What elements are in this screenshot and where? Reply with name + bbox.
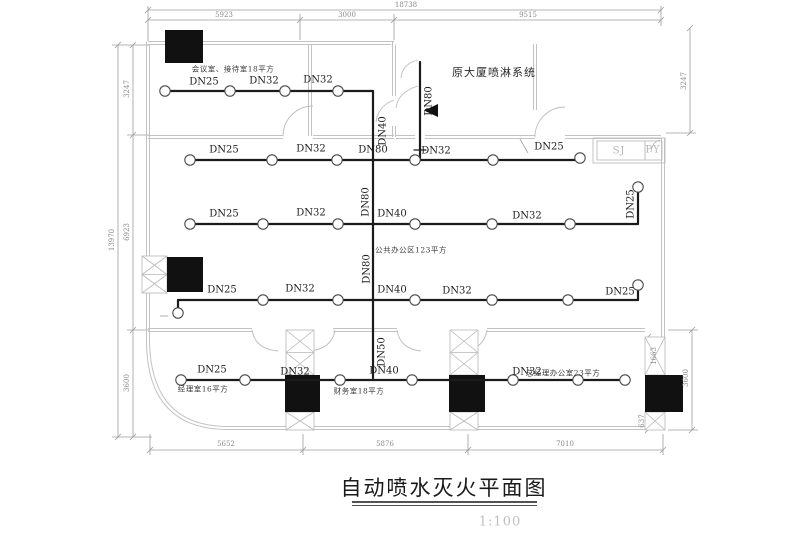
sprinkler-icon [575, 153, 585, 163]
pipe-label-dn25: DN25 [207, 285, 237, 296]
sprinkler-icon [225, 86, 235, 96]
sprinkler-icon [563, 295, 573, 305]
sprinkler-icon [332, 155, 342, 165]
pipe-label-dn25-vertical: DN25 [626, 189, 637, 219]
pipe-label-dn32: DN32 [296, 208, 326, 219]
room-label-open-office: 公共办公区123平方 [375, 245, 447, 256]
dim-top-total: 18738 [395, 1, 417, 9]
sprinkler-icon [407, 375, 417, 385]
shaft-hatches [142, 256, 665, 430]
pipe-label-dn32: DN32 [296, 144, 326, 155]
riser-label-dn80-supply: DN80 [424, 86, 435, 116]
sprinkler-icon [333, 219, 343, 229]
shaft-label-sj: SJ [613, 146, 626, 157]
sprinkler-icon [240, 375, 250, 385]
sprinkler-icon [487, 295, 497, 305]
dim-bottom-2: 5876 [376, 440, 394, 448]
sprinkler-icon [280, 86, 290, 96]
pipe-label-dn25: DN25 [534, 142, 564, 153]
dim-bottom-1: 5652 [217, 440, 235, 448]
pipe-label-dn32: DN32 [249, 76, 279, 87]
pipe-label-dn25: DN25 [189, 77, 219, 88]
pipe-label-dn40: DN40 [369, 366, 399, 377]
sprinkler-icon [185, 155, 195, 165]
sprinkler-heads [160, 86, 643, 385]
sprinkler-icon [335, 375, 345, 385]
column [167, 257, 203, 292]
pipe-label-dn25: DN25 [209, 209, 239, 220]
riser-label-dn40: DN40 [378, 116, 389, 146]
door-arc-right [535, 107, 565, 137]
room-label-meeting: 会议室、接待室18平方 [192, 64, 275, 75]
sprinkler-icon [173, 308, 183, 318]
sprinkler-icon [410, 219, 420, 229]
dim-bottom-3: 7010 [556, 440, 574, 448]
sprinkler-icon [410, 295, 420, 305]
title-underline [352, 502, 537, 506]
room-label-gm: 总经理办公室23平方 [526, 368, 601, 379]
pipe-label-dn25: DN25 [197, 365, 227, 376]
note-supply-system: 原大厦喷淋系统 [452, 64, 536, 80]
sprinkler-icon [620, 375, 630, 385]
sprinkler-icon [160, 86, 170, 96]
dim-right-inner-2: 637 [638, 414, 646, 427]
room-label-manager: 经理室16平方 [178, 384, 229, 395]
pipe-label-dn32: DN32 [442, 286, 472, 297]
drawing-title: 自动喷水灭火平面图 [341, 472, 548, 502]
dim-top-1: 5923 [215, 11, 233, 19]
drawing-scale: 1:100 [479, 515, 521, 530]
door-arc-entry-upper [401, 60, 418, 78]
sprinkler-icon [258, 295, 268, 305]
sprinkler-icon [333, 295, 343, 305]
pipe-label-dn40: DN40 [377, 285, 407, 296]
dim-right-inner-1: 1663 [650, 347, 658, 365]
dim-left-2: 6923 [123, 223, 131, 241]
pipe-label-dn25: DN25 [209, 145, 239, 156]
sprinkler-icon [487, 219, 497, 229]
dim-left-3: 3600 [123, 374, 131, 392]
riser-label-dn80: DN80 [361, 187, 372, 217]
sprinkler-icon [410, 155, 420, 165]
sprinkler-icon [185, 219, 195, 229]
pipe-label-dn80: DN80 [358, 145, 388, 156]
dim-top-3: 9515 [519, 11, 537, 19]
dim-left-total: 13970 [108, 229, 116, 251]
pipe-label-dn32: DN32 [280, 367, 310, 378]
dim-right-lower: 3600 [682, 369, 690, 387]
pipe-label-dn40: DN40 [377, 209, 407, 220]
riser-label-dn50: DN50 [377, 337, 388, 367]
sprinkler-icon [267, 155, 277, 165]
floor-plan-canvas: DN25 DN32 DN32 DN25 DN32 DN80 DN32 DN25 … [0, 0, 800, 533]
sprinkler-icon [333, 86, 343, 96]
room-label-finance: 财务室18平方 [334, 386, 385, 397]
pipe-label-dn32: DN32 [512, 211, 542, 222]
sprinkler-icon [488, 155, 498, 165]
door-arcs [252, 60, 660, 351]
leader-line [520, 139, 528, 153]
dim-top-2: 3000 [338, 11, 356, 19]
sprinkler-icon [258, 219, 268, 229]
column [645, 375, 683, 412]
sprinkler-icon [565, 219, 575, 229]
pipe-label-dn25: DN25 [605, 287, 635, 298]
pipe-label-dn32: DN32 [303, 75, 333, 86]
dim-right-upper: 3247 [680, 72, 688, 90]
shaft-label-py: PY [645, 145, 660, 156]
column [165, 30, 203, 63]
riser-label-dn80: DN80 [362, 254, 373, 284]
pipe-label-dn32: DN32 [421, 146, 451, 157]
dim-left-1: 3247 [123, 80, 131, 98]
pipe-label-dn32: DN32 [285, 284, 315, 295]
